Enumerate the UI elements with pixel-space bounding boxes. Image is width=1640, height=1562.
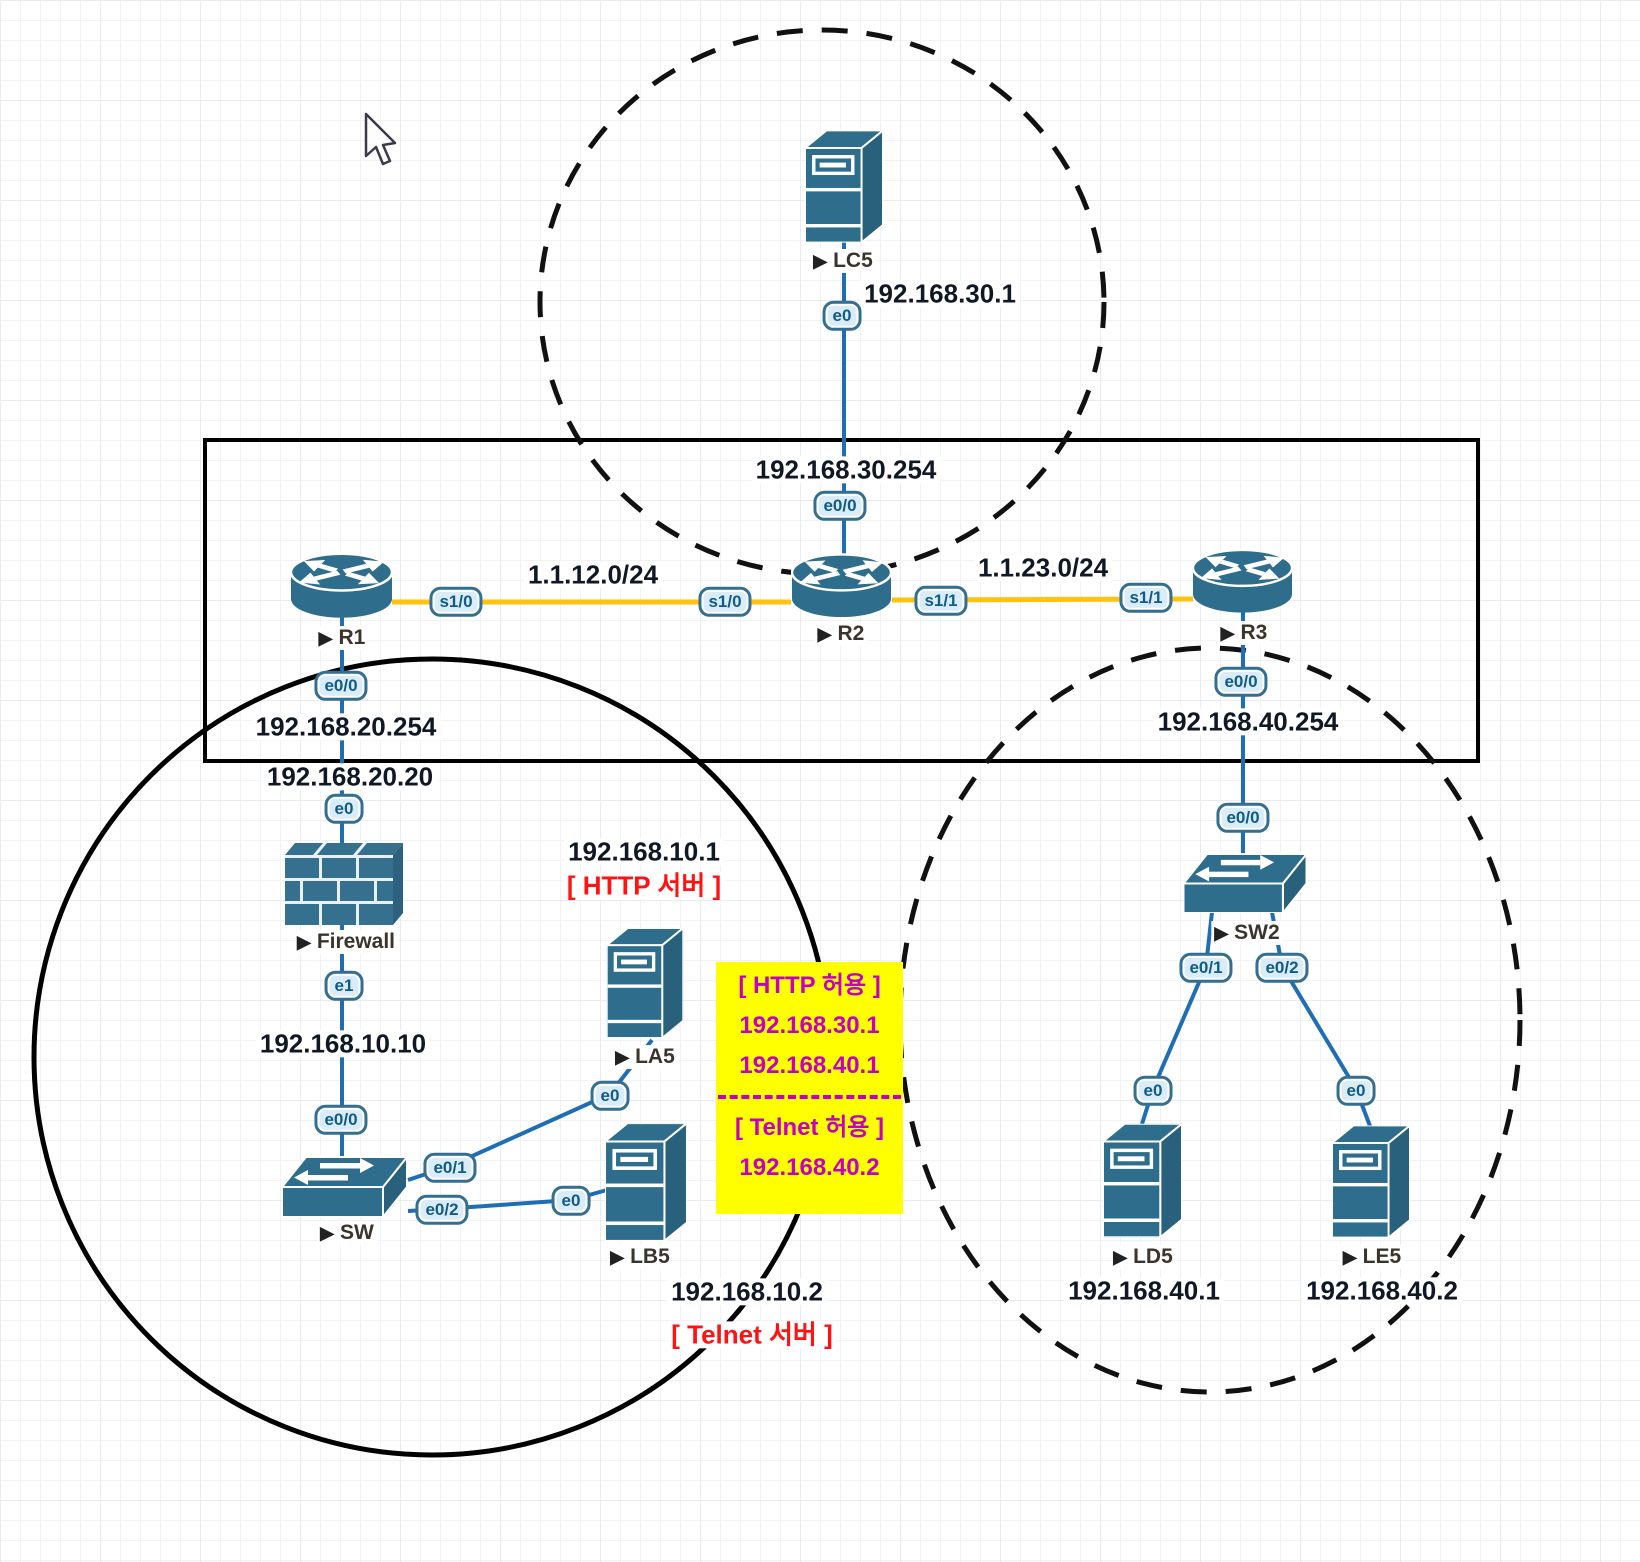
device-r1-router-icon[interactable] bbox=[290, 552, 393, 620]
port-lb5-e0[interactable]: e0 bbox=[552, 1186, 591, 1216]
device-name-ld5: LD5 bbox=[1133, 1245, 1173, 1269]
port-sw-e0-1[interactable]: e0/1 bbox=[423, 1153, 476, 1183]
port-r3-s1-1[interactable]: s1/1 bbox=[1119, 583, 1172, 613]
device-marker-icon: ▶ bbox=[615, 1048, 629, 1066]
device-firewall-icon[interactable] bbox=[285, 843, 403, 925]
label-fw-e1-ip: 192.168.10.10 bbox=[256, 1030, 430, 1057]
network-diagram-canvas: 192.168.30.1 192.168.30.254 1.1.12.0/24 … bbox=[0, 0, 1640, 1562]
device-name-firewall: Firewall bbox=[317, 930, 395, 954]
device-la5-server-icon[interactable] bbox=[605, 928, 685, 1038]
port-sw-e0-2[interactable]: e0/2 bbox=[415, 1195, 468, 1225]
label-le5-ip: 192.168.40.2 bbox=[1302, 1277, 1462, 1304]
port-ld5-e0[interactable]: e0 bbox=[1134, 1076, 1173, 1106]
device-marker-icon: ▶ bbox=[813, 252, 827, 270]
port-sw-e0-0[interactable]: e0/0 bbox=[314, 1105, 367, 1135]
device-marker-icon: ▶ bbox=[1214, 924, 1228, 942]
label-lb5-role: [ Telnet 서버 ] bbox=[667, 1321, 836, 1348]
device-label-sw2: ▶SW2 bbox=[1211, 921, 1282, 945]
label-r2-e00-ip: 192.168.30.254 bbox=[752, 456, 941, 483]
device-name-lb5: LB5 bbox=[630, 1245, 670, 1269]
device-marker-icon: ▶ bbox=[1221, 624, 1235, 642]
label-lc5-ip: 192.168.30.1 bbox=[860, 280, 1020, 307]
device-lc5-server-icon[interactable] bbox=[805, 130, 883, 243]
port-firewall-e0[interactable]: e0 bbox=[325, 794, 364, 824]
port-r2-e0-0[interactable]: e0/0 bbox=[813, 491, 866, 521]
device-label-ld5: ▶LD5 bbox=[1110, 1245, 1176, 1269]
device-label-le5: ▶LE5 bbox=[1340, 1245, 1404, 1269]
port-sw2-e0-1[interactable]: e0/1 bbox=[1179, 953, 1232, 983]
device-label-r1: ▶R1 bbox=[316, 626, 369, 650]
label-ld5-ip: 192.168.40.1 bbox=[1064, 1277, 1224, 1304]
device-name-sw2: SW2 bbox=[1234, 921, 1280, 945]
device-name-le5: LE5 bbox=[1363, 1245, 1402, 1269]
label-r3-e00-ip: 192.168.40.254 bbox=[1154, 708, 1343, 735]
device-label-r2: ▶R2 bbox=[815, 622, 868, 646]
device-marker-icon: ▶ bbox=[610, 1248, 624, 1266]
device-name-la5: LA5 bbox=[635, 1045, 675, 1069]
device-ld5-server-icon[interactable] bbox=[1103, 1123, 1182, 1238]
acl-divider bbox=[718, 1095, 901, 1099]
port-r2-s1-1[interactable]: s1/1 bbox=[914, 586, 967, 616]
device-label-lc5: ▶LC5 bbox=[810, 249, 876, 273]
port-sw2-e0-0[interactable]: e0/0 bbox=[1216, 803, 1269, 833]
label-net-r2-r3: 1.1.23.0/24 bbox=[974, 554, 1112, 581]
device-marker-icon: ▶ bbox=[818, 625, 832, 643]
device-marker-icon: ▶ bbox=[1113, 1248, 1127, 1266]
device-sw2-switch-icon[interactable] bbox=[1183, 852, 1307, 913]
device-label-la5: ▶LA5 bbox=[612, 1045, 678, 1069]
port-lc5-e0[interactable]: e0 bbox=[823, 301, 862, 331]
port-le5-e0[interactable]: e0 bbox=[1337, 1076, 1376, 1106]
port-la5-e0[interactable]: e0 bbox=[591, 1081, 630, 1111]
device-marker-icon: ▶ bbox=[319, 629, 333, 647]
device-label-r3: ▶R3 bbox=[1218, 621, 1271, 645]
port-sw2-e0-2[interactable]: e0/2 bbox=[1255, 953, 1308, 983]
acl-telnet-title: [ Telnet 허용 ] bbox=[716, 1108, 903, 1148]
label-la5-role: [ HTTP 서버 ] bbox=[563, 872, 725, 899]
acl-telnet-allowed-1: 192.168.40.2 bbox=[716, 1148, 903, 1188]
port-r1-s1-0[interactable]: s1/0 bbox=[429, 587, 482, 617]
device-name-sw: SW bbox=[340, 1221, 374, 1245]
acl-http-allowed-1: 192.168.30.1 bbox=[716, 1006, 903, 1046]
mouse-cursor-icon bbox=[362, 112, 404, 168]
label-r1-e00-ip: 192.168.20.254 bbox=[252, 713, 441, 740]
device-name-r1: R1 bbox=[338, 626, 365, 650]
device-r3-router-icon[interactable] bbox=[1192, 548, 1293, 615]
device-marker-icon: ▶ bbox=[320, 1224, 334, 1242]
device-label-sw: ▶SW bbox=[317, 1221, 377, 1245]
acl-http-allowed-2: 192.168.40.1 bbox=[716, 1046, 903, 1086]
device-label-firewall: ▶Firewall bbox=[294, 930, 398, 954]
label-net-r1-r2: 1.1.12.0/24 bbox=[524, 561, 662, 588]
device-name-r3: R3 bbox=[1240, 621, 1267, 645]
acl-note[interactable]: [ HTTP 허용 ] 192.168.30.1 192.168.40.1 [ … bbox=[716, 962, 903, 1214]
device-label-lb5: ▶LB5 bbox=[607, 1245, 673, 1269]
device-le5-server-icon[interactable] bbox=[1332, 1125, 1410, 1238]
device-marker-icon: ▶ bbox=[1343, 1248, 1357, 1266]
device-sw-switch-icon[interactable] bbox=[282, 1155, 407, 1217]
label-la5-ip: 192.168.10.1 bbox=[564, 838, 724, 865]
device-lb5-server-icon[interactable] bbox=[605, 1122, 687, 1242]
acl-http-title: [ HTTP 허용 ] bbox=[716, 966, 903, 1006]
device-name-lc5: LC5 bbox=[833, 249, 873, 273]
port-r3-e0-0[interactable]: e0/0 bbox=[1214, 667, 1267, 697]
label-fw-e0-ip: 192.168.20.20 bbox=[263, 763, 437, 790]
device-marker-icon: ▶ bbox=[297, 933, 311, 951]
port-r1-e0-0[interactable]: e0/0 bbox=[314, 671, 367, 701]
device-r2-router-icon[interactable] bbox=[790, 553, 893, 619]
device-name-r2: R2 bbox=[837, 622, 864, 646]
port-firewall-e1[interactable]: e1 bbox=[325, 971, 364, 1001]
port-r2-s1-0[interactable]: s1/0 bbox=[698, 587, 751, 617]
label-lb5-ip: 192.168.10.2 bbox=[667, 1278, 827, 1305]
